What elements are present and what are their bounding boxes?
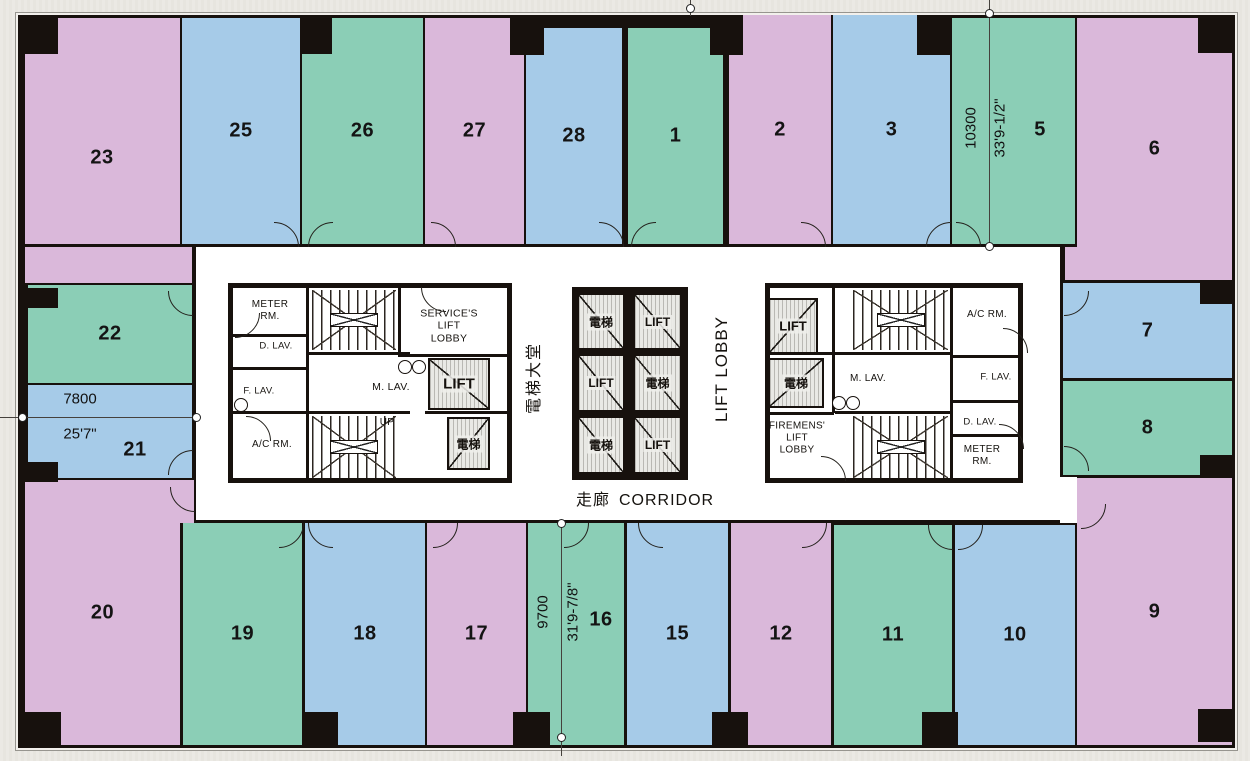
unit-number-21: 21: [123, 439, 146, 462]
column: [1198, 709, 1232, 742]
unit-number-12: 12: [769, 623, 792, 646]
column: [712, 712, 748, 745]
stair-machine-box: [877, 313, 925, 327]
fixture-basin: [234, 398, 248, 412]
lift-bank-cell-zh: 電梯: [633, 354, 682, 412]
partition-wall: [425, 411, 512, 414]
fixture-basin: [412, 360, 426, 374]
lift-bank-cell-zh: 電梯: [577, 293, 625, 350]
unit-number-27: 27: [463, 120, 486, 143]
column: [303, 712, 338, 745]
partition-wall: [950, 288, 953, 480]
dim-9700-marker: [557, 519, 566, 528]
unit-number-3: 3: [886, 118, 898, 141]
lift-shaft: LIFT: [768, 298, 818, 354]
corridor-label-en: CORRIDOR: [619, 492, 714, 509]
fixture-basin: [398, 360, 412, 374]
room-label: FIREMENS' LIFT LOBBY: [769, 420, 825, 455]
partition-wall: [398, 288, 401, 356]
lift-bank-cell-zh-label: 電梯: [643, 375, 671, 392]
dim-9700-marker: [557, 733, 566, 742]
room-label: A/C RM.: [967, 309, 1007, 321]
unit-number-15: 15: [666, 623, 689, 646]
corridor-label-zh: 走廊: [576, 492, 610, 509]
unit-number-20: 20: [91, 601, 114, 624]
dim-10300-label: 10300: [963, 107, 980, 149]
room-label: F. LAV.: [980, 371, 1011, 382]
room-label: F. LAV.: [243, 385, 274, 396]
unit-number-25: 25: [229, 120, 252, 143]
unit-number-28: 28: [562, 125, 585, 148]
unit-number-9: 9: [1149, 600, 1161, 623]
unit-number-17: 17: [465, 623, 488, 646]
unit-number-5: 5: [1034, 119, 1046, 142]
unit-number-2: 2: [774, 118, 786, 141]
dim-7800-line: [0, 417, 196, 418]
partition-wall: [832, 288, 835, 413]
column: [1198, 15, 1232, 53]
column: [22, 18, 58, 54]
room-label: METER RM.: [964, 444, 1001, 468]
partition-wall: [398, 354, 512, 357]
lift-shaft-zh-label: 電梯: [782, 375, 810, 392]
lift-lobby-label-zh: 電梯大堂: [520, 342, 544, 414]
stair-machine-box: [330, 313, 378, 327]
grid-marker-marker: [686, 4, 695, 13]
lift-shaft-zh-label: 電梯: [454, 435, 482, 452]
unit-number-16: 16: [589, 609, 612, 632]
partition-wall: [835, 411, 952, 414]
lift-bank-cell-lift-label: LIFT: [643, 438, 672, 452]
room-label: D. LAV.: [963, 416, 996, 427]
fixture-basin: [846, 396, 860, 410]
column: [922, 712, 958, 745]
lift-bank-cell-lift: LIFT: [633, 293, 682, 350]
dim-7800-label: 7800: [63, 391, 96, 408]
stair-well: [312, 290, 396, 350]
column: [300, 18, 332, 54]
column: [510, 15, 544, 55]
lift-bank-cell-zh-label: 電梯: [587, 437, 615, 454]
lift-shaft-label: LIFT: [441, 376, 477, 393]
stair-machine-box: [877, 440, 925, 454]
lift-shaft: LIFT: [428, 358, 490, 410]
plan-patch: [1060, 477, 1077, 523]
dim-10300-label: 33'9-1/2": [992, 98, 1009, 157]
column: [710, 15, 743, 55]
dim-7800-marker: [18, 413, 27, 422]
unit-number-11: 11: [882, 624, 904, 647]
column: [1200, 455, 1233, 475]
unit-number-18: 18: [353, 623, 376, 646]
lift-bank-cell-zh-label: 電梯: [587, 313, 615, 330]
column: [22, 288, 58, 308]
partition-wall: [950, 355, 1023, 358]
lift-bank-cell-zh: 電梯: [577, 416, 625, 474]
partition-wall: [768, 412, 834, 415]
lift-bank-cell-lift: LIFT: [577, 354, 625, 412]
partition-wall: [950, 400, 1023, 403]
lift-lobby-label: LIFT LOBBY: [712, 316, 732, 422]
dim-7800-label: 25'7": [63, 426, 96, 443]
stair-machine-box: [330, 440, 378, 454]
unit-number-6: 6: [1149, 138, 1161, 161]
dim-10300-marker: [985, 242, 994, 251]
partition-wall: [835, 352, 952, 355]
floor-plan: 2325262728123562221782019181716151211109…: [0, 0, 1250, 761]
column: [917, 15, 951, 55]
dim-9700-label: 31'9-7/8": [565, 582, 582, 641]
unit-number-26: 26: [351, 120, 374, 143]
dim-9700-line: [561, 520, 562, 756]
lift-bank-cell-lift-label: LIFT: [643, 315, 672, 329]
dim-7800-marker: [192, 413, 201, 422]
unit-number-23: 23: [90, 147, 113, 170]
dim-10300-marker: [985, 9, 994, 18]
column: [1200, 283, 1233, 304]
room-label: UP: [380, 417, 395, 429]
unit-number-1: 1: [670, 125, 682, 148]
dim-9700-label: 9700: [535, 595, 552, 628]
lift-bank-cell-lift-label: LIFT: [586, 376, 615, 390]
column: [25, 712, 61, 745]
dim-10300-line: [989, 0, 990, 246]
unit-number-8: 8: [1142, 417, 1154, 440]
unit-number-10: 10: [1003, 624, 1026, 647]
partition-wall: [306, 352, 410, 355]
plan-patch: [1065, 247, 1232, 280]
partition-wall: [306, 411, 410, 414]
column: [513, 712, 550, 745]
corridor-label: 走廊 CORRIDOR: [576, 486, 714, 510]
room-label: SERVICE'S LIFT LOBBY: [420, 307, 478, 344]
unit-number-22: 22: [98, 323, 121, 346]
column: [22, 462, 58, 482]
fixture-basin: [832, 396, 846, 410]
stair-well: [853, 416, 948, 478]
unit-number-7: 7: [1142, 319, 1154, 342]
room-label: M. LAV.: [372, 381, 410, 393]
lift-shaft-label: LIFT: [777, 319, 808, 334]
lift-shaft-zh: 電梯: [447, 417, 490, 470]
partition-wall: [231, 367, 307, 370]
lift-bank-cell-lift: LIFT: [633, 416, 682, 474]
plan-patch: [25, 247, 192, 283]
room-label: M. LAV.: [850, 373, 886, 385]
stair-well: [853, 290, 948, 350]
lift-shaft-zh: 電梯: [768, 358, 824, 408]
partition-wall: [306, 288, 309, 478]
room-label: D. LAV.: [259, 340, 292, 351]
unit-number-19: 19: [231, 623, 254, 646]
